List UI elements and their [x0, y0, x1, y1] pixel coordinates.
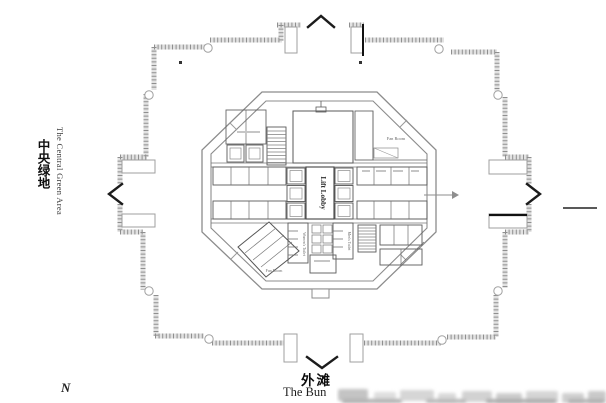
fan-room-top-label: Fan Room [387, 136, 406, 141]
watermark-blur-strip [336, 385, 606, 403]
floor-plan-drawing: Lift Lobby Fan Room Fan Room Women's Toi… [0, 0, 606, 403]
chevron-right-icon [527, 184, 540, 204]
fan-room-bottom-label: Fan Room [266, 268, 284, 273]
chevron-down-icon [307, 357, 337, 368]
chevron-left-icon [109, 184, 122, 204]
lift-lobby-label: Lift Lobby [319, 176, 327, 210]
central-green-area-en-label: The Central Green Area [55, 127, 65, 215]
the-bund-en-label: The Bun [283, 385, 326, 400]
central-green-area-cn-label: 中央绿地 [36, 139, 49, 189]
floor-plan-page: Lift Lobby Fan Room Fan Room Women's Toi… [0, 0, 606, 403]
chevron-up-icon [308, 16, 334, 27]
womens-toilet-label: Women's Toilet [302, 232, 306, 257]
mens-toilet-label: Men's Toilet [347, 232, 351, 252]
octagon-ring [202, 92, 459, 298]
north-mark: N [61, 380, 70, 396]
